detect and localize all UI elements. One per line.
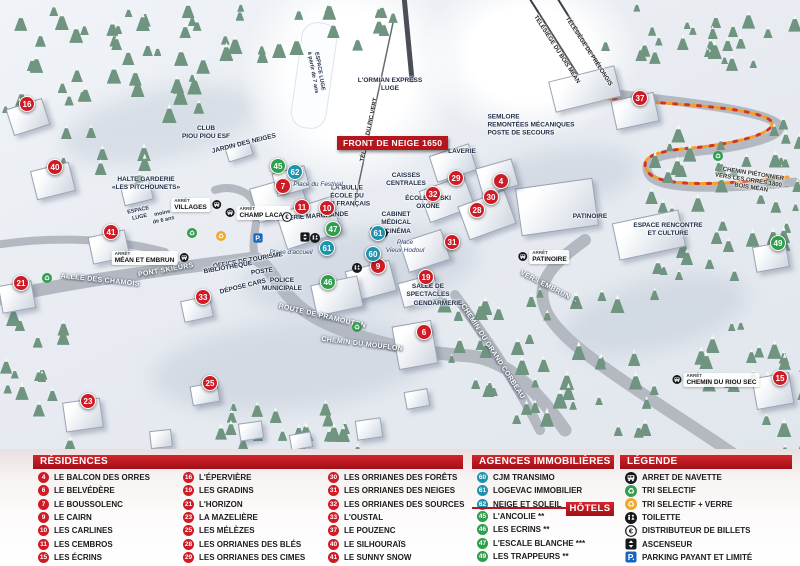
residence-item: 31LES ORRIANES DES NEIGES [328, 484, 464, 497]
front-de-neige-banner: FRONT DE NEIGE 1650 [337, 136, 448, 150]
map-label-line: CLUB [197, 125, 215, 132]
map-marker-10: 10 [319, 200, 335, 216]
map-label-line: Place [397, 239, 413, 246]
bus-icon [212, 200, 221, 209]
map-marker-33: 33 [195, 289, 211, 305]
svg-text:♻: ♻ [715, 152, 721, 160]
map-label-line: Place du Festival [293, 181, 343, 188]
bus-icon [625, 472, 637, 484]
svg-text:♻: ♻ [627, 499, 635, 509]
hotels-divider [472, 507, 568, 509]
number-badge: 23 [183, 512, 194, 523]
hotel-item: 47L'ESCALE BLANCHE *** [477, 537, 585, 550]
map-marker-40: 40 [47, 159, 63, 175]
map-marker-37: 37 [632, 90, 648, 106]
map-label: GENDARMERIE [414, 300, 463, 308]
euro-map-icon: € [282, 212, 292, 222]
agence-item: 60CJM TRANSIMO [477, 471, 582, 484]
legende-item: P.PARKING PAYANT ET LIMITÉ [625, 551, 752, 564]
map-label-line: MÉDICAL [381, 219, 411, 226]
number-badge: 11 [38, 539, 49, 550]
svg-text:♻: ♻ [189, 229, 195, 237]
item-label: LE SILHOURAÏS [344, 540, 406, 549]
map-label: CAISSESCENTRALES [386, 172, 426, 188]
legende-column: ARRET DE NAVETTE♻TRI SELECTIF♻TRI SELECT… [625, 471, 752, 564]
item-label: LES ÉCRINS [54, 553, 102, 562]
recycle-green-icon: ♻ [625, 485, 637, 497]
toilet-map-icon [352, 263, 362, 273]
recycle-yellow-map-icon: ♻ [216, 231, 226, 241]
map-label-line: MUNICIPALE [262, 285, 302, 292]
toilet-icon [352, 263, 362, 273]
number-badge: 61 [477, 485, 488, 496]
number-badge: 9 [38, 512, 49, 523]
map-label-line: SEMLORE [487, 113, 519, 120]
map-marker-11: 11 [294, 199, 310, 215]
legend-panel: RÉSIDENCES AGENCES IMMOBILIÈRES LÉGENDE … [0, 449, 800, 566]
map-marker-32: 32 [425, 186, 441, 202]
map-label-line: Vieux Hodoul [386, 247, 425, 254]
item-label: L'OUSTAL [344, 513, 383, 522]
map-label-line: SPECTACLES [406, 291, 449, 298]
map-marker-28: 28 [469, 202, 485, 218]
number-badge: 10 [38, 525, 49, 536]
item-label: TOILETTE [642, 513, 681, 522]
map-label: PlaceVieux Hodoul [386, 239, 425, 255]
bus-stop-label: ARRÊTMÉAN ET EMBRUN [112, 251, 178, 265]
item-label: LE BALCON DES ORRES [54, 473, 150, 482]
item-label: LE POUZENC [344, 526, 396, 535]
map-label-line: ESPACE RENCONTRE [633, 222, 702, 229]
map-marker-41: 41 [103, 224, 119, 240]
map-marker-60: 60 [365, 246, 381, 262]
map-label: LAVERIE [448, 148, 476, 156]
recycle-green-icon: ♻ [42, 273, 52, 283]
residence-item: 16L'ÉPERVIÈRE [183, 471, 305, 484]
number-badge: 7 [38, 499, 49, 510]
residence-item: 41LE SUNNY SNOW [328, 551, 464, 564]
agence-item: 61LOGEVAC IMMOBILIER [477, 484, 582, 497]
recycle-green-icon: ♻ [187, 228, 197, 238]
toilet-icon [310, 233, 320, 243]
map-label: POLICEMUNICIPALE [262, 277, 302, 293]
hotel-item: 46LES ECRINS ** [477, 523, 585, 536]
map-marker-47: 47 [325, 221, 341, 237]
number-badge: 45 [477, 511, 488, 522]
number-badge: 28 [183, 539, 194, 550]
map-label-line: HALTE GARDERIE [117, 176, 174, 183]
elevator-map-icon [300, 232, 310, 242]
parking-icon: P. [253, 233, 263, 243]
residences-column-2: 16L'ÉPERVIÈRE19LES GRADINS21L'HORIZON23L… [183, 471, 305, 564]
legende-header: LÉGENDE [620, 455, 792, 469]
bus-icon [212, 196, 221, 214]
map-marker-21: 21 [13, 275, 29, 291]
number-badge: 15 [38, 552, 49, 563]
map-marker-29: 29 [448, 170, 464, 186]
map-label-line: LUGE [381, 85, 399, 92]
item-label: LES ORRIANES DES NEIGES [344, 486, 455, 495]
map-label-line: CENTRALES [386, 180, 426, 187]
bus-stop-label: ARRÊTPATINOIRE [529, 250, 569, 264]
map-marker-45: 45 [270, 158, 286, 174]
bus-stop-chemin-du-riou-sec: ARRÊTCHEMIN DU RIOU SEC [672, 371, 759, 389]
item-label: LES CEMBROS [54, 540, 113, 549]
number-badge: 60 [477, 472, 488, 483]
number-badge: 31 [328, 485, 339, 496]
bus-stop-name: PATINOIRE [532, 256, 566, 263]
elevator-icon [625, 538, 637, 550]
item-label: PARKING PAYANT ET LIMITÉ [642, 553, 752, 562]
legende-item: ♻TRI SELECTIF + VERRE [625, 498, 752, 511]
item-label: LES CARLINES [54, 526, 113, 535]
map-label-line: L'ORMIAN EXPRESS [358, 77, 422, 84]
legende-item: ASCENSEUR [625, 537, 752, 550]
map-marker-31: 31 [444, 234, 460, 250]
map-label-line: OXONE [416, 203, 439, 210]
residence-item: 25LES MÉLÈZES [183, 524, 305, 537]
map-marker-61: 61 [370, 225, 386, 241]
recycle-green-icon: ♻ [352, 322, 362, 332]
map-label-line: POSTE DE SECOURS [487, 129, 554, 136]
number-badge: 4 [38, 472, 49, 483]
hotels-column: 45L'ANCOLIE **46LES ECRINS **47L'ESCALE … [477, 510, 585, 563]
number-badge: 6 [38, 485, 49, 496]
number-badge: 46 [477, 524, 488, 535]
map-marker-7: 7 [275, 178, 291, 194]
map-marker-46: 46 [320, 274, 336, 290]
map-label-line: CAISSES [392, 172, 421, 179]
elevator-icon [300, 232, 310, 242]
residences-column-3: 30LES ORRIANES DES FORÊTS31LES ORRIANES … [328, 471, 464, 564]
map-label: PATINOIRE [573, 213, 607, 221]
bus-stop-name: MÉAN ET EMBRUN [115, 257, 175, 264]
bus-icon [179, 253, 188, 262]
residence-item: 6LE BELVÉDÈRE [38, 484, 150, 497]
map-label-line: POLICE [270, 277, 294, 284]
recycle-green-map-icon: ♻ [352, 322, 362, 332]
svg-text:♻: ♻ [218, 232, 224, 240]
residence-item: 33L'OUSTAL [328, 511, 464, 524]
residence-item: 15LES ÉCRINS [38, 551, 150, 564]
map-label-line: LAVERIE [448, 148, 476, 155]
legende-item: €DISTRIBUTEUR DE BILLETS [625, 524, 752, 537]
bus-stop-villages: ARRÊTVILLAGES [171, 196, 221, 214]
item-label: LES ECRINS ** [493, 525, 549, 534]
item-label: CJM TRANSIMO [493, 473, 555, 482]
ski-resort-map: CLUBPIOU PIOU ESFJARDIN DES NEIGESHALTE … [0, 0, 800, 566]
bus-stop-patinoire: ARRÊTPATINOIRE [518, 248, 569, 266]
item-label: LES MÉLÈZES [199, 526, 255, 535]
item-label: L'ANCOLIE ** [493, 512, 544, 521]
map-label: Place du Festival [293, 181, 343, 189]
item-label: L'ÉPERVIÈRE [199, 473, 251, 482]
map-marker-49: 49 [770, 235, 786, 251]
recycle-green-map-icon: ♻ [187, 228, 197, 238]
number-badge: 49 [477, 551, 488, 562]
map-label: SALLE DESPECTACLES [406, 283, 449, 299]
residence-item: 40LE SILHOURAÏS [328, 537, 464, 550]
hotel-item: 45L'ANCOLIE ** [477, 510, 585, 523]
map-marker-4: 4 [493, 173, 509, 189]
bus-icon [672, 371, 681, 389]
number-badge: 25 [183, 525, 194, 536]
item-label: LES ORRIANES DES SOURCES [344, 500, 464, 509]
number-badge: 47 [477, 538, 488, 549]
toilet-icon [625, 512, 637, 524]
item-label: L'HORIZON [199, 500, 243, 509]
recycle-green-icon: ♻ [713, 151, 723, 161]
euro-icon: € [625, 525, 637, 537]
svg-text:€: € [285, 214, 289, 221]
map-label-line: CABINET [382, 211, 411, 218]
residence-item: 10LES CARLINES [38, 524, 150, 537]
item-label: LES TRAPPEURS ** [493, 552, 569, 561]
item-label: LOGEVAC IMMOBILIER [493, 486, 582, 495]
map-marker-16: 16 [19, 96, 35, 112]
item-label: LES ORRIANES DES CIMES [199, 553, 305, 562]
bus-icon [179, 249, 188, 267]
residence-item: 23LA MAZELIÈRE [183, 511, 305, 524]
recycle-yellow-icon: ♻ [216, 231, 226, 241]
map-marker-23: 23 [80, 393, 96, 409]
residence-item: 9LE CAIRN [38, 511, 150, 524]
number-badge: 33 [328, 512, 339, 523]
hotel-item: 49LES TRAPPEURS ** [477, 550, 585, 563]
toilet-map-icon [310, 233, 320, 243]
map-marker-15: 15 [772, 370, 788, 386]
number-badge: 16 [183, 472, 194, 483]
map-marker-19: 19 [418, 269, 434, 285]
recycle-green-map-icon: ♻ [713, 151, 723, 161]
bus-stop-label: ARRÊTCHEMIN DU RIOU SEC [683, 373, 759, 387]
residences-column-1: 4LE BALCON DES ORRES6LE BELVÉDÈRE7LE BOU… [38, 471, 150, 564]
item-label: DISTRIBUTEUR DE BILLETS [642, 526, 750, 535]
bus-icon [672, 375, 681, 384]
residence-item: 37LE POUZENC [328, 524, 464, 537]
number-badge: 40 [328, 539, 339, 550]
legende-item: TOILETTE [625, 511, 752, 524]
number-badge: 19 [183, 485, 194, 496]
item-label: LE BOUSSOLENC [54, 500, 123, 509]
number-badge: 32 [328, 499, 339, 510]
map-label-line: ET CULTURE [648, 230, 689, 237]
residence-item: 19LES GRADINS [183, 484, 305, 497]
agences-header: AGENCES IMMOBILIÈRES [472, 455, 614, 469]
building-shape [355, 417, 384, 440]
number-badge: 30 [328, 472, 339, 483]
residence-item: 28LES ORRIANES DES BLÉS [183, 537, 305, 550]
bus-stop-label: ARRÊTVILLAGES [171, 198, 210, 212]
item-label: L'ESCALE BLANCHE *** [493, 539, 585, 548]
map-label: HALTE GARDERIE«LES PITCHOUNETS» [112, 176, 180, 192]
bus-stop-name: VILLAGES [174, 204, 207, 211]
item-label: LES GRADINS [199, 486, 254, 495]
residence-item: 11LES CEMBROS [38, 537, 150, 550]
residence-item: 29LES ORRIANES DES CIMES [183, 551, 305, 564]
svg-text:♻: ♻ [354, 323, 360, 331]
residence-item: 21L'HORIZON [183, 498, 305, 511]
item-label: LA MAZELIÈRE [199, 513, 258, 522]
svg-text:♻: ♻ [627, 486, 635, 496]
bus-stop-champ-lacas: ARRÊTCHAMP LACAS [226, 204, 291, 222]
map-label: CINÉMA [385, 228, 411, 236]
residence-item: 7LE BOUSSOLENC [38, 498, 150, 511]
map-marker-62: 62 [287, 164, 303, 180]
number-badge: 41 [328, 552, 339, 563]
parking-icon: P. [625, 551, 637, 563]
map-marker-6: 6 [416, 324, 432, 340]
item-label: LE SUNNY SNOW [344, 553, 411, 562]
legende-item: ♻TRI SELECTIF [625, 484, 752, 497]
number-badge: 37 [328, 525, 339, 536]
residence-item: 30LES ORRIANES DES FORÊTS [328, 471, 464, 484]
map-label-line: REMONTÉES MÉCANIQUES [487, 121, 574, 128]
map-marker-30: 30 [483, 189, 499, 205]
recycle-green-map-icon: ♻ [42, 273, 52, 283]
map-marker-61: 61 [319, 240, 335, 256]
item-label: TRI SELECTIF [642, 486, 696, 495]
item-label: TRI SELECTIF + VERRE [642, 500, 732, 509]
building-shape [149, 429, 173, 449]
bus-icon [518, 248, 527, 266]
item-label: ARRET DE NAVETTE [642, 473, 722, 482]
map-label: L'ORMIAN EXPRESSLUGE [358, 77, 422, 93]
legende-item: ARRET DE NAVETTE [625, 471, 752, 484]
recycle-yellow-icon: ♻ [625, 498, 637, 510]
map-label: CLUBPIOU PIOU ESF [182, 125, 230, 141]
map-label-line: «LES PITCHOUNETS» [112, 184, 180, 191]
bus-icon [518, 252, 527, 261]
euro-icon: € [282, 212, 292, 222]
item-label: LE CAIRN [54, 513, 92, 522]
svg-text:P.: P. [628, 553, 635, 563]
building-shape [238, 420, 264, 441]
bus-icon [226, 208, 235, 217]
item-label: ASCENSEUR [642, 540, 692, 549]
bus-icon [226, 204, 235, 222]
residence-item: 4LE BALCON DES ORRES [38, 471, 150, 484]
bus-stop-name: CHEMIN DU RIOU SEC [686, 379, 756, 386]
map-label-line: ÉCOLE DU [330, 192, 364, 199]
map-label-line: PATINOIRE [573, 213, 607, 220]
map-label: CABINETMÉDICAL [381, 211, 411, 227]
map-label-line: CINÉMA [385, 228, 411, 235]
bus-stop-m-an-et-embrun: ARRÊTMÉAN ET EMBRUN [112, 249, 189, 267]
svg-text:♻: ♻ [44, 274, 50, 282]
residence-item: 32LES ORRIANES DES SOURCES [328, 498, 464, 511]
bus-stop-name: CHAMP LACAS [240, 212, 288, 219]
svg-text:P.: P. [255, 235, 261, 243]
residences-header: RÉSIDENCES [33, 455, 463, 469]
map-marker-25: 25 [202, 375, 218, 391]
item-label: LES ORRIANES DES BLÉS [199, 540, 301, 549]
number-badge: 21 [183, 499, 194, 510]
map-label-line: GENDARMERIE [414, 300, 463, 307]
map-label: SEMLOREREMONTÉES MÉCANIQUESPOSTE DE SECO… [487, 113, 574, 136]
map-label-line: PIOU PIOU ESF [182, 133, 230, 140]
item-label: LES ORRIANES DES FORÊTS [344, 473, 457, 482]
number-badge: 29 [183, 552, 194, 563]
parking-map-icon: P. [253, 233, 263, 243]
map-label: ESPACE RENCONTREET CULTURE [633, 222, 702, 238]
item-label: LE BELVÉDÈRE [54, 486, 115, 495]
